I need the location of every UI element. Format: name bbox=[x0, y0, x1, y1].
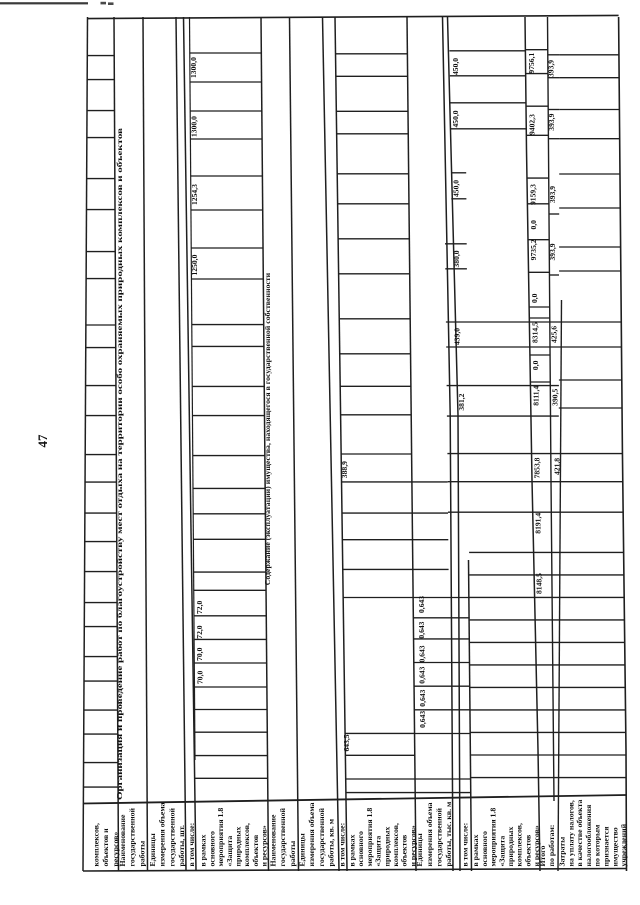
svg-text:комплексов,: комплексов, bbox=[515, 823, 524, 866]
svg-text:Наименование: Наименование bbox=[118, 814, 127, 867]
svg-text:8111,4: 8111,4 bbox=[532, 386, 541, 406]
svg-text:в рамках: в рамках bbox=[199, 835, 208, 867]
svg-text:учреждений: учреждений bbox=[619, 823, 628, 866]
svg-text:измерения объема: измерения объема bbox=[307, 802, 316, 866]
svg-text:393,9: 393,9 bbox=[548, 186, 557, 203]
svg-text:работы: работы bbox=[288, 841, 297, 867]
svg-text:в том числе:: в том числе: bbox=[337, 823, 346, 867]
svg-text:0,643: 0,643 bbox=[418, 711, 427, 728]
svg-text:природных: природных bbox=[382, 827, 391, 867]
svg-text:0,643: 0,643 bbox=[417, 645, 426, 662]
svg-text:380,0: 380,0 bbox=[452, 250, 461, 267]
svg-text:388,9: 388,9 bbox=[340, 461, 349, 478]
svg-text:комплексов,: комплексов, bbox=[242, 823, 251, 866]
svg-text:Организация и проведение работ: Организация и проведение работ по благоу… bbox=[115, 128, 124, 800]
svg-text:Единицы: Единицы bbox=[148, 833, 157, 866]
svg-text:0,643: 0,643 bbox=[417, 596, 426, 613]
svg-text:измерения объема: измерения объема bbox=[158, 802, 167, 866]
svg-text:1250,0: 1250,0 bbox=[190, 254, 199, 275]
svg-text:в рамках: в рамках bbox=[471, 835, 480, 867]
svg-text:в качестве объекта: в качестве объекта bbox=[575, 799, 584, 866]
svg-text:мероприятия 1.8: мероприятия 1.8 bbox=[216, 808, 225, 867]
svg-text:8314,5: 8314,5 bbox=[530, 322, 539, 343]
svg-text:390,5: 390,5 bbox=[551, 389, 560, 406]
svg-text:в рамках: в рамках bbox=[348, 835, 357, 867]
svg-text:признается: признается bbox=[602, 826, 611, 867]
svg-text:объектов: объектов bbox=[400, 835, 409, 867]
svg-text:643,5: 643,5 bbox=[342, 734, 351, 751]
svg-text:1300,0: 1300,0 bbox=[189, 57, 198, 78]
svg-text:по работам:: по работам: bbox=[547, 825, 556, 867]
svg-text:9735,2: 9735,2 bbox=[529, 239, 538, 260]
svg-text:объектов: объектов bbox=[523, 835, 532, 867]
svg-text:450,0: 450,0 bbox=[451, 110, 460, 127]
svg-text:72,0: 72,0 bbox=[195, 625, 204, 638]
svg-text:государственной: государственной bbox=[435, 807, 444, 866]
svg-text:450,0: 450,0 bbox=[451, 58, 460, 75]
svg-text:работы: работы bbox=[137, 841, 146, 867]
svg-text:по которым: по которым bbox=[593, 824, 602, 867]
svg-text:основного: основного bbox=[356, 831, 365, 867]
svg-text:0,643: 0,643 bbox=[418, 689, 427, 706]
svg-text:Итого: Итого bbox=[538, 845, 547, 866]
svg-text:47: 47 bbox=[35, 434, 50, 448]
svg-text:измерения объема: измерения объема bbox=[425, 802, 434, 866]
svg-text:основного: основного bbox=[480, 831, 489, 867]
svg-text:«Защита: «Защита bbox=[374, 836, 383, 867]
svg-text:8191,4: 8191,4 bbox=[534, 513, 543, 534]
svg-text:налогообложения: налогообложения bbox=[584, 804, 593, 867]
svg-text:393,9: 393,9 bbox=[547, 60, 556, 77]
svg-text:0,0: 0,0 bbox=[529, 220, 538, 230]
svg-text:0,0: 0,0 bbox=[531, 360, 540, 370]
svg-text:работы, тыс. кв. м: работы, тыс. кв. м bbox=[444, 801, 453, 867]
svg-text:72,0: 72,0 bbox=[195, 601, 204, 614]
svg-text:комплексов,: комплексов, bbox=[391, 823, 400, 866]
svg-text:государственной: государственной bbox=[128, 807, 137, 866]
svg-text:государственной: государственной bbox=[317, 807, 326, 866]
svg-text:Единицы: Единицы bbox=[297, 833, 306, 866]
svg-text:государственной: государственной bbox=[167, 807, 176, 866]
svg-text:9402,3: 9402,3 bbox=[528, 114, 537, 135]
svg-text:«Защита: «Защита bbox=[497, 836, 506, 867]
svg-text:государственной: государственной bbox=[278, 807, 287, 866]
svg-text:393,9: 393,9 bbox=[548, 243, 557, 260]
svg-text:работы, шт.: работы, шт. bbox=[177, 825, 186, 866]
svg-text:объектов: объектов bbox=[251, 835, 260, 867]
svg-text:1300,0: 1300,0 bbox=[190, 116, 199, 137]
svg-text:439,0: 439,0 bbox=[453, 328, 462, 345]
svg-text:421,8: 421,8 bbox=[552, 458, 561, 475]
svg-text:8148,5: 8148,5 bbox=[535, 573, 544, 594]
svg-text:381,2: 381,2 bbox=[457, 393, 466, 410]
svg-text:9159,3: 9159,3 bbox=[528, 184, 537, 205]
svg-text:1254,3: 1254,3 bbox=[190, 184, 199, 205]
svg-text:0,0: 0,0 bbox=[530, 293, 539, 303]
svg-text:Содержание (эксплуатации) имущ: Содержание (эксплуатации) имущества, нах… bbox=[263, 272, 272, 585]
svg-text:природных: природных bbox=[234, 827, 243, 867]
svg-text:Затраты: Затраты bbox=[558, 837, 567, 867]
svg-text:450,0: 450,0 bbox=[452, 180, 461, 197]
svg-text:70,0: 70,0 bbox=[195, 647, 204, 660]
svg-text:в том числе:: в том числе: bbox=[187, 823, 196, 867]
svg-text:«Защита: «Защита bbox=[225, 836, 234, 867]
svg-text:Единицы: Единицы bbox=[415, 833, 424, 866]
svg-text:9756,1: 9756,1 bbox=[527, 53, 536, 74]
svg-text:0,643: 0,643 bbox=[418, 666, 427, 683]
svg-text:70,0: 70,0 bbox=[196, 671, 205, 684]
svg-text:работы, кв. м: работы, кв. м bbox=[327, 818, 336, 866]
svg-text:основного: основного bbox=[207, 831, 216, 867]
svg-text:7853,8: 7853,8 bbox=[533, 457, 542, 478]
svg-text:природных: природных bbox=[506, 827, 515, 867]
svg-text:мероприятия 1.8: мероприятия 1.8 bbox=[489, 808, 498, 867]
svg-text:0,643: 0,643 bbox=[417, 621, 426, 638]
svg-text:объектов и: объектов и bbox=[101, 828, 110, 867]
svg-text:комплексов,: комплексов, bbox=[91, 823, 100, 866]
svg-text:425,6: 425,6 bbox=[550, 326, 559, 343]
svg-text:имущество: имущество bbox=[610, 827, 619, 866]
svg-text:мероприятия 1.8: мероприятия 1.8 bbox=[365, 808, 374, 867]
svg-text:Наименование: Наименование bbox=[268, 814, 277, 867]
svg-text:и ресурсов»: и ресурсов» bbox=[260, 825, 269, 866]
svg-text:393,9: 393,9 bbox=[547, 113, 556, 130]
svg-text:на уплату налогов,: на уплату налогов, bbox=[566, 800, 575, 866]
svg-text:в том числе:: в том числе: bbox=[460, 823, 469, 867]
